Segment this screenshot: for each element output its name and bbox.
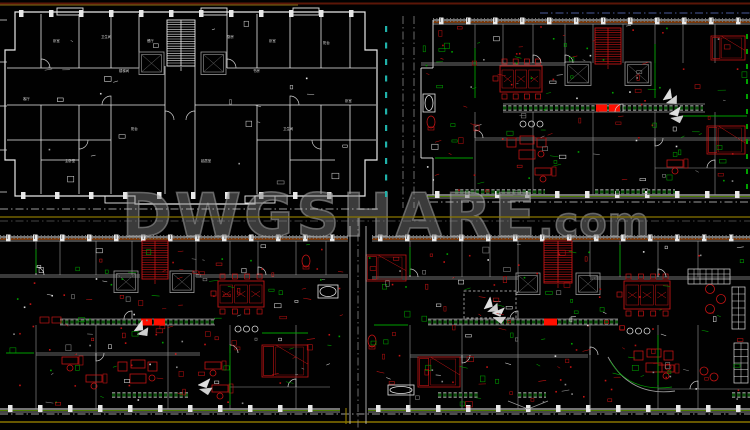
cad-screenshot: 卧室卫生间餐厅厨房卧室阳台客厅楼梯间书房卧室主卧室起居室卫生间阳台 DWGSHA… (0, 0, 750, 430)
svg-text:阳台: 阳台 (323, 40, 330, 45)
svg-text:起居室: 起居室 (201, 158, 212, 163)
plan-bottom-left (0, 235, 348, 413)
watermark-text: DWGSHARE (122, 181, 538, 251)
svg-text:卫生间: 卫生间 (283, 126, 294, 131)
svg-text:楼梯间: 楼梯间 (119, 68, 130, 73)
watermark-suffix: .com (538, 200, 650, 246)
svg-text:书房: 书房 (253, 68, 260, 73)
svg-text:卧室: 卧室 (269, 38, 276, 43)
watermark: DWGSHARE.com (122, 186, 650, 246)
svg-text:阳台: 阳台 (131, 126, 138, 131)
svg-text:卫生间: 卫生间 (101, 34, 112, 39)
svg-text:主卧室: 主卧室 (65, 158, 76, 163)
svg-text:卧室: 卧室 (53, 38, 60, 43)
svg-text:卧室: 卧室 (345, 98, 352, 103)
svg-text:餐厅: 餐厅 (147, 38, 154, 43)
svg-text:厨房: 厨房 (227, 34, 234, 39)
plan-bottom-right (366, 235, 750, 413)
svg-text:客厅: 客厅 (23, 96, 30, 101)
plan-top-right (421, 18, 750, 199)
plan-top-left: 卧室卫生间餐厅厨房卧室阳台客厅楼梯间书房卧室主卧室起居室卫生间阳台 (5, 8, 377, 204)
